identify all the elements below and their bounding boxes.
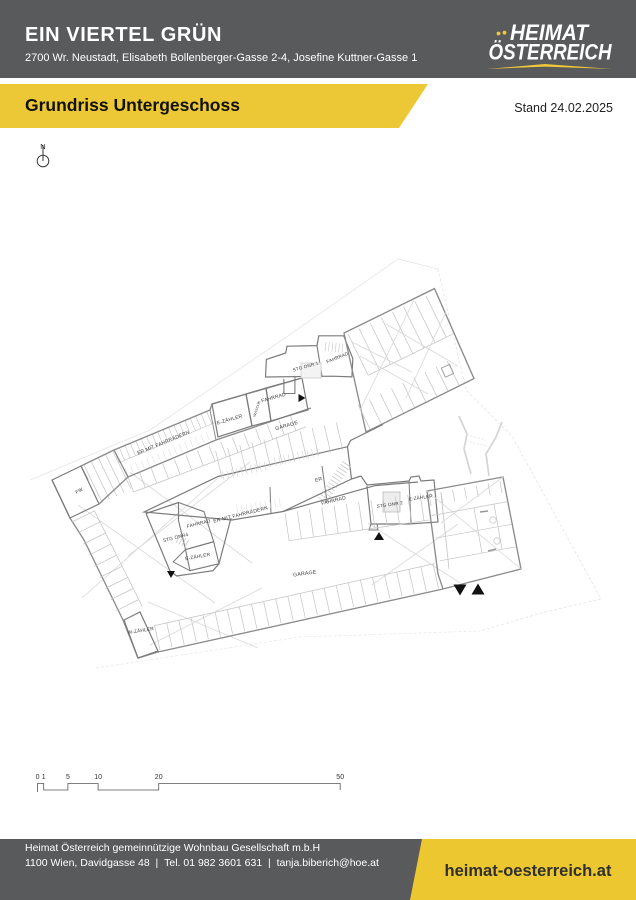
svg-text:FAHRRAD: FAHRRAD: [326, 351, 350, 365]
svg-text:ER: ER: [314, 476, 323, 484]
svg-text:1: 1: [42, 774, 46, 781]
svg-text:E-ZÄHLER: E-ZÄHLER: [185, 551, 211, 562]
svg-text:10: 10: [94, 774, 102, 781]
svg-text:N: N: [40, 142, 45, 151]
svg-text:FAHRRAD: FAHRRAD: [261, 392, 287, 405]
svg-text:0: 0: [36, 774, 40, 781]
svg-text:GARAGE: GARAGE: [293, 569, 317, 578]
svg-text:5: 5: [66, 774, 70, 781]
svg-text:WASCHK: WASCHK: [253, 400, 262, 418]
svg-text:FAHRRAD: FAHRRAD: [186, 518, 211, 530]
svg-text:E-ZÄHLER: E-ZÄHLER: [216, 413, 243, 427]
svg-text:FW: FW: [75, 486, 85, 495]
svg-text:20: 20: [155, 774, 163, 781]
svg-text:50: 50: [336, 774, 344, 781]
svg-text:STG ONR4: STG ONR4: [162, 532, 189, 544]
svg-text:GARAGE: GARAGE: [275, 420, 299, 432]
svg-text:ER MIT FAHRRÄDERN: ER MIT FAHRRÄDERN: [213, 504, 269, 524]
